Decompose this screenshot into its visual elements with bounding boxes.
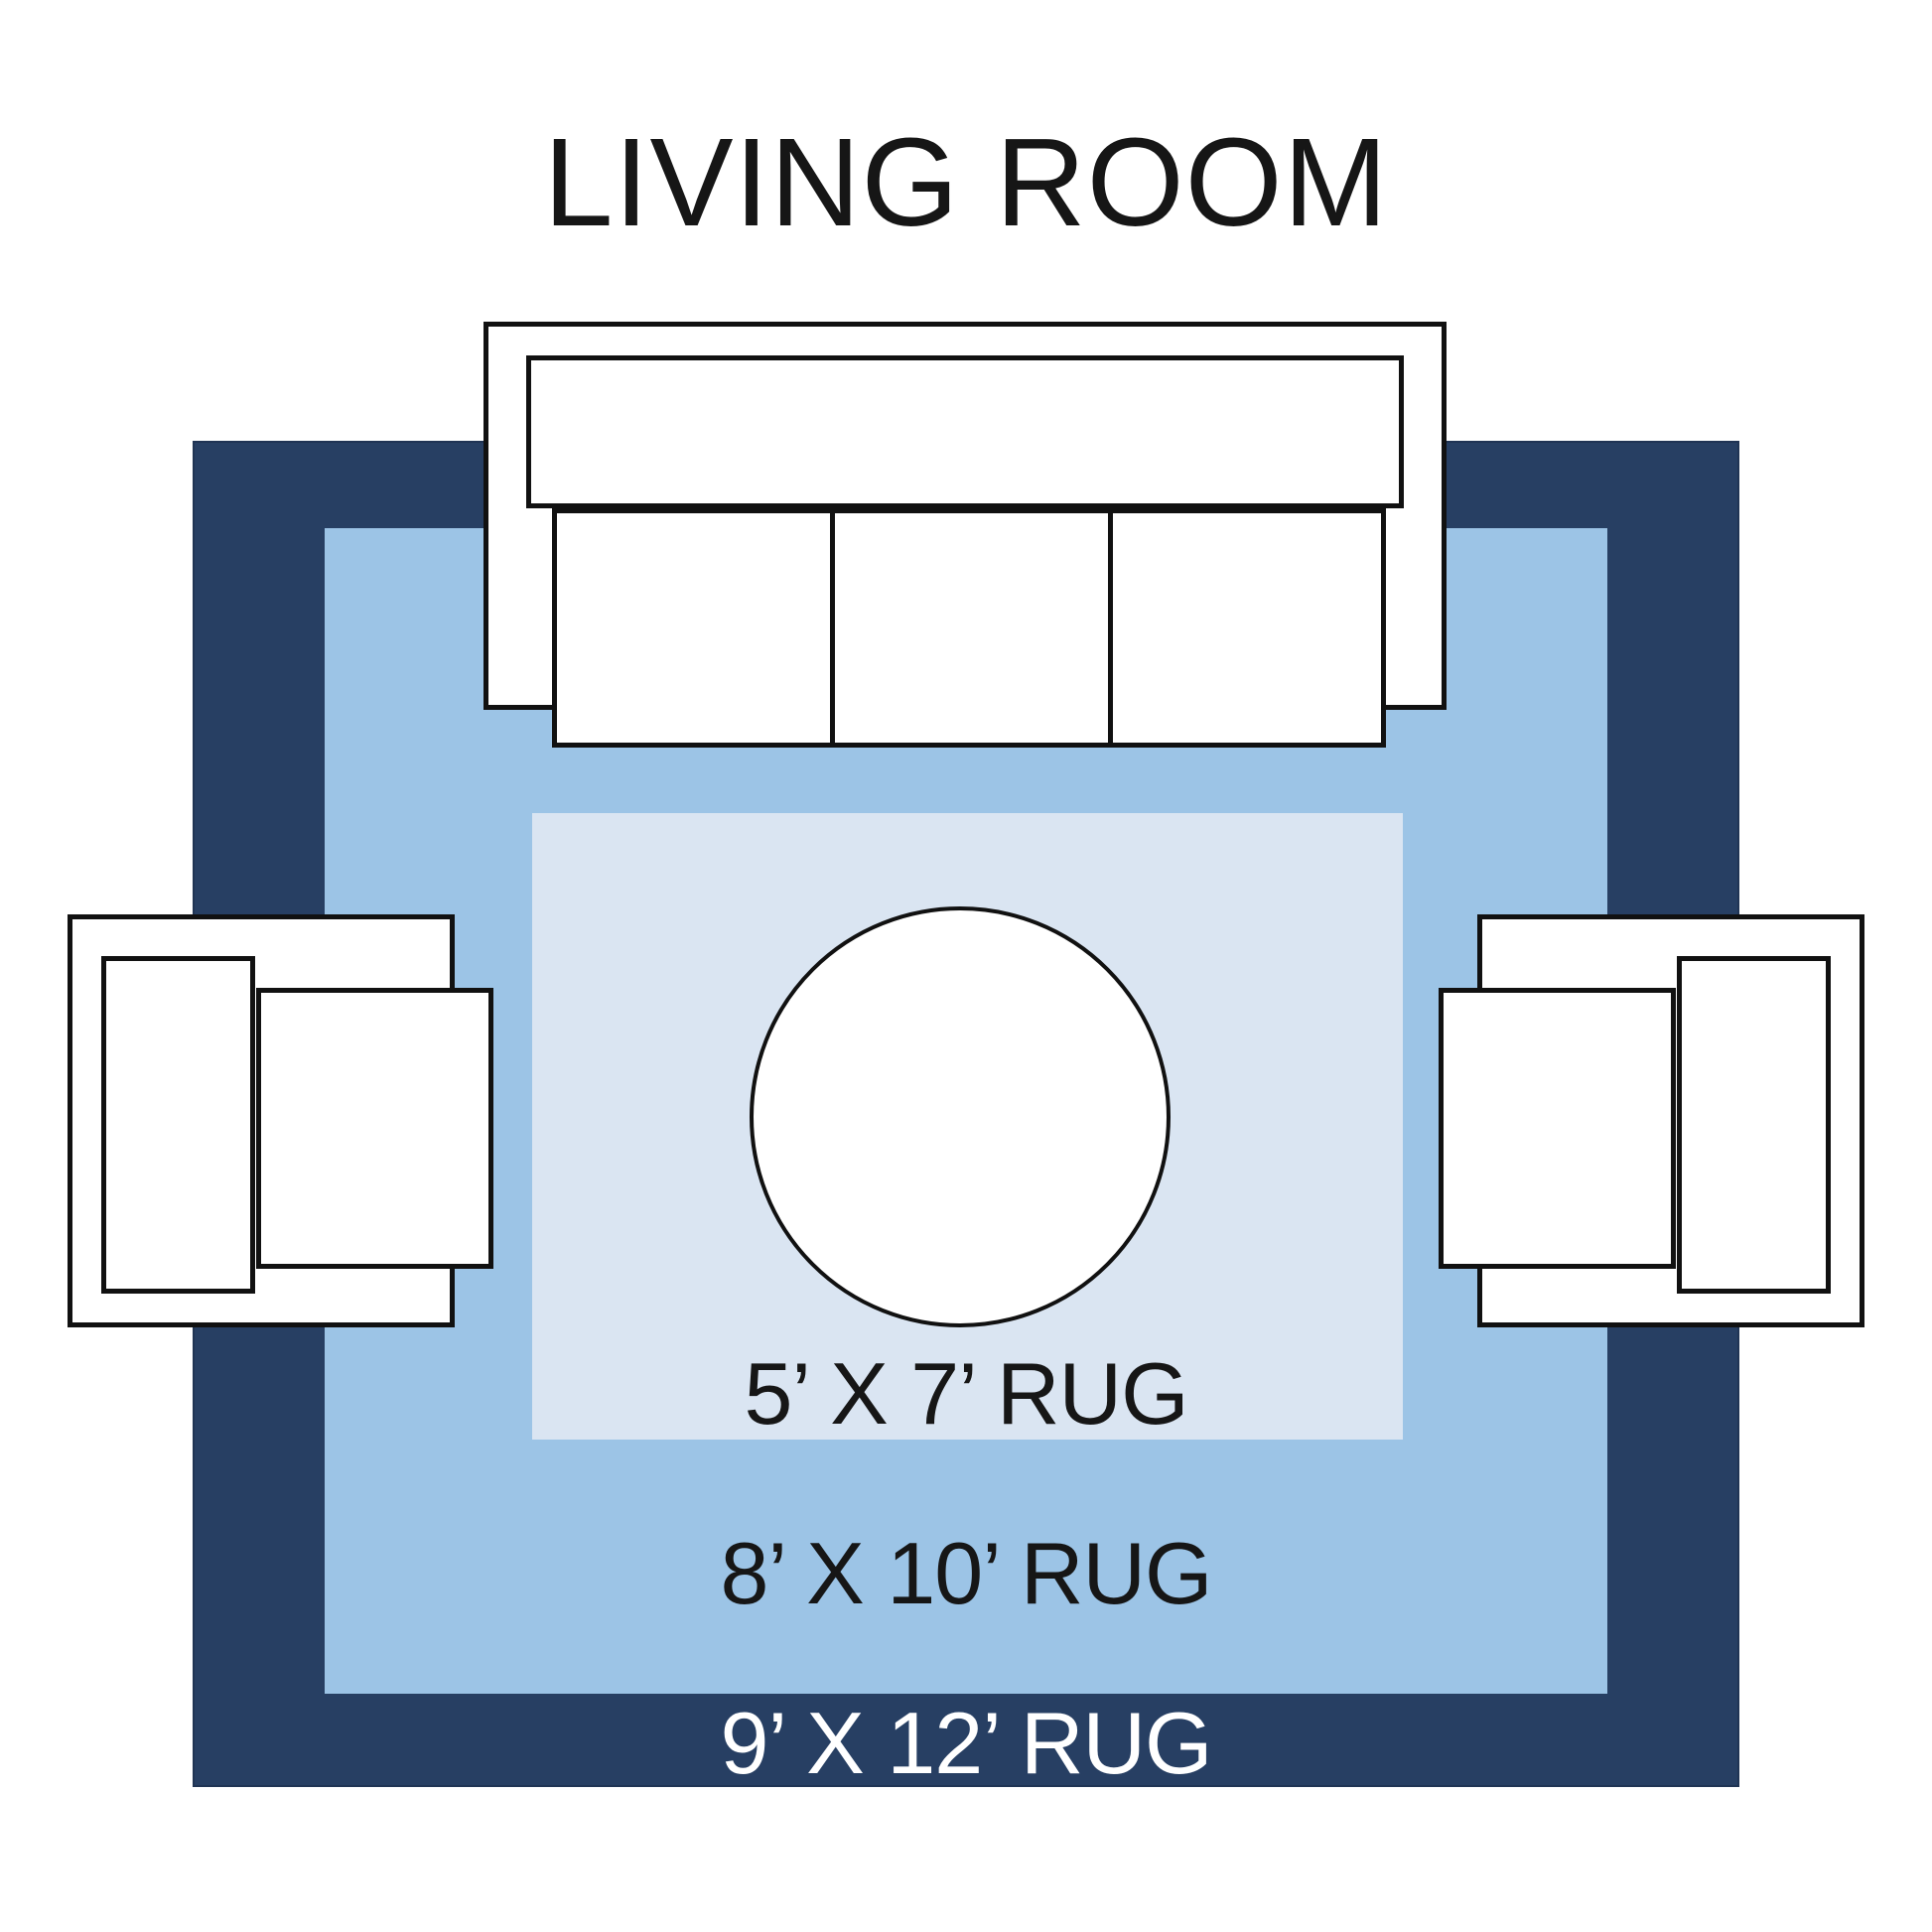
armchair-left-backrest [101,956,255,1294]
page-title: LIVING ROOM [0,120,1932,245]
armchair-right-seat [1439,988,1676,1269]
sofa-cushion-divider [1108,513,1113,743]
sofa-backrest [526,355,1404,508]
round-coffee-table-icon [750,906,1171,1327]
armchair-right-backrest [1677,956,1831,1294]
sofa-cushion-divider [830,513,835,743]
rug-5x7-label: 5’ X 7’ RUG [0,1350,1932,1438]
armchair-left-seat [256,988,493,1269]
rug-9x12-label: 9’ X 12’ RUG [0,1700,1932,1787]
living-room-rug-diagram: LIVING ROOM 5’ X 7’ RUG 8’ X 10’ RUG 9’ … [0,0,1932,1932]
rug-8x10-label: 8’ X 10’ RUG [0,1530,1932,1617]
sofa-seat-cushions [552,508,1386,748]
